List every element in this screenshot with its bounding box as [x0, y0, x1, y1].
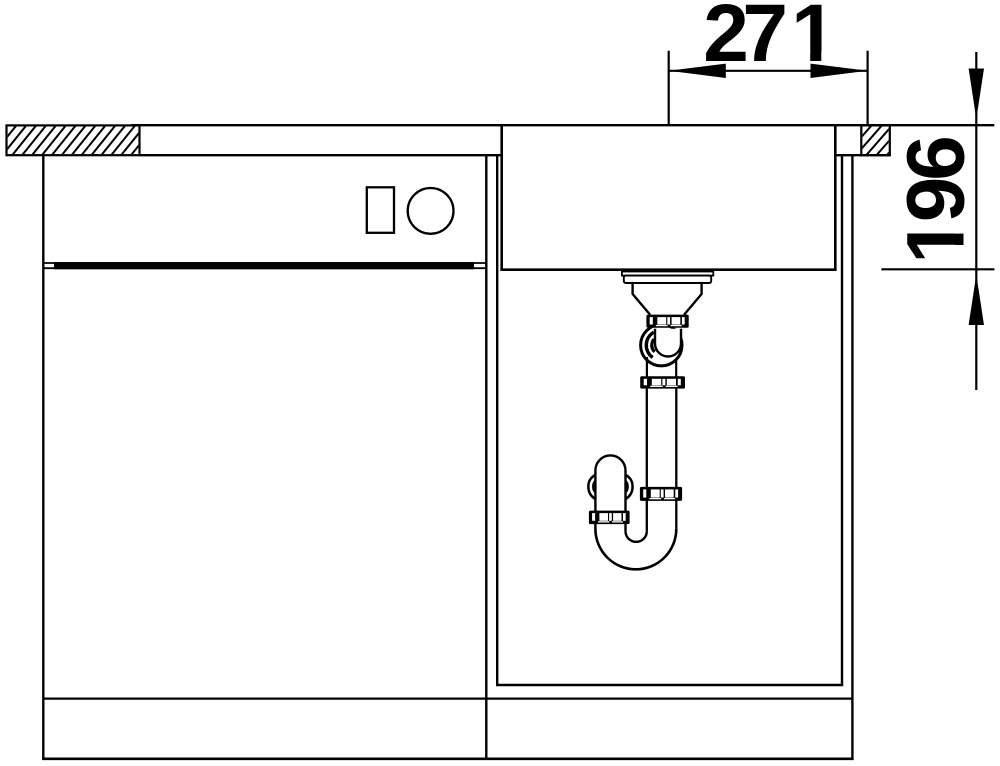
svg-text:27: 27: [703, 0, 784, 79]
svg-text:1: 1: [791, 0, 837, 79]
svg-text:196: 196: [891, 138, 982, 264]
